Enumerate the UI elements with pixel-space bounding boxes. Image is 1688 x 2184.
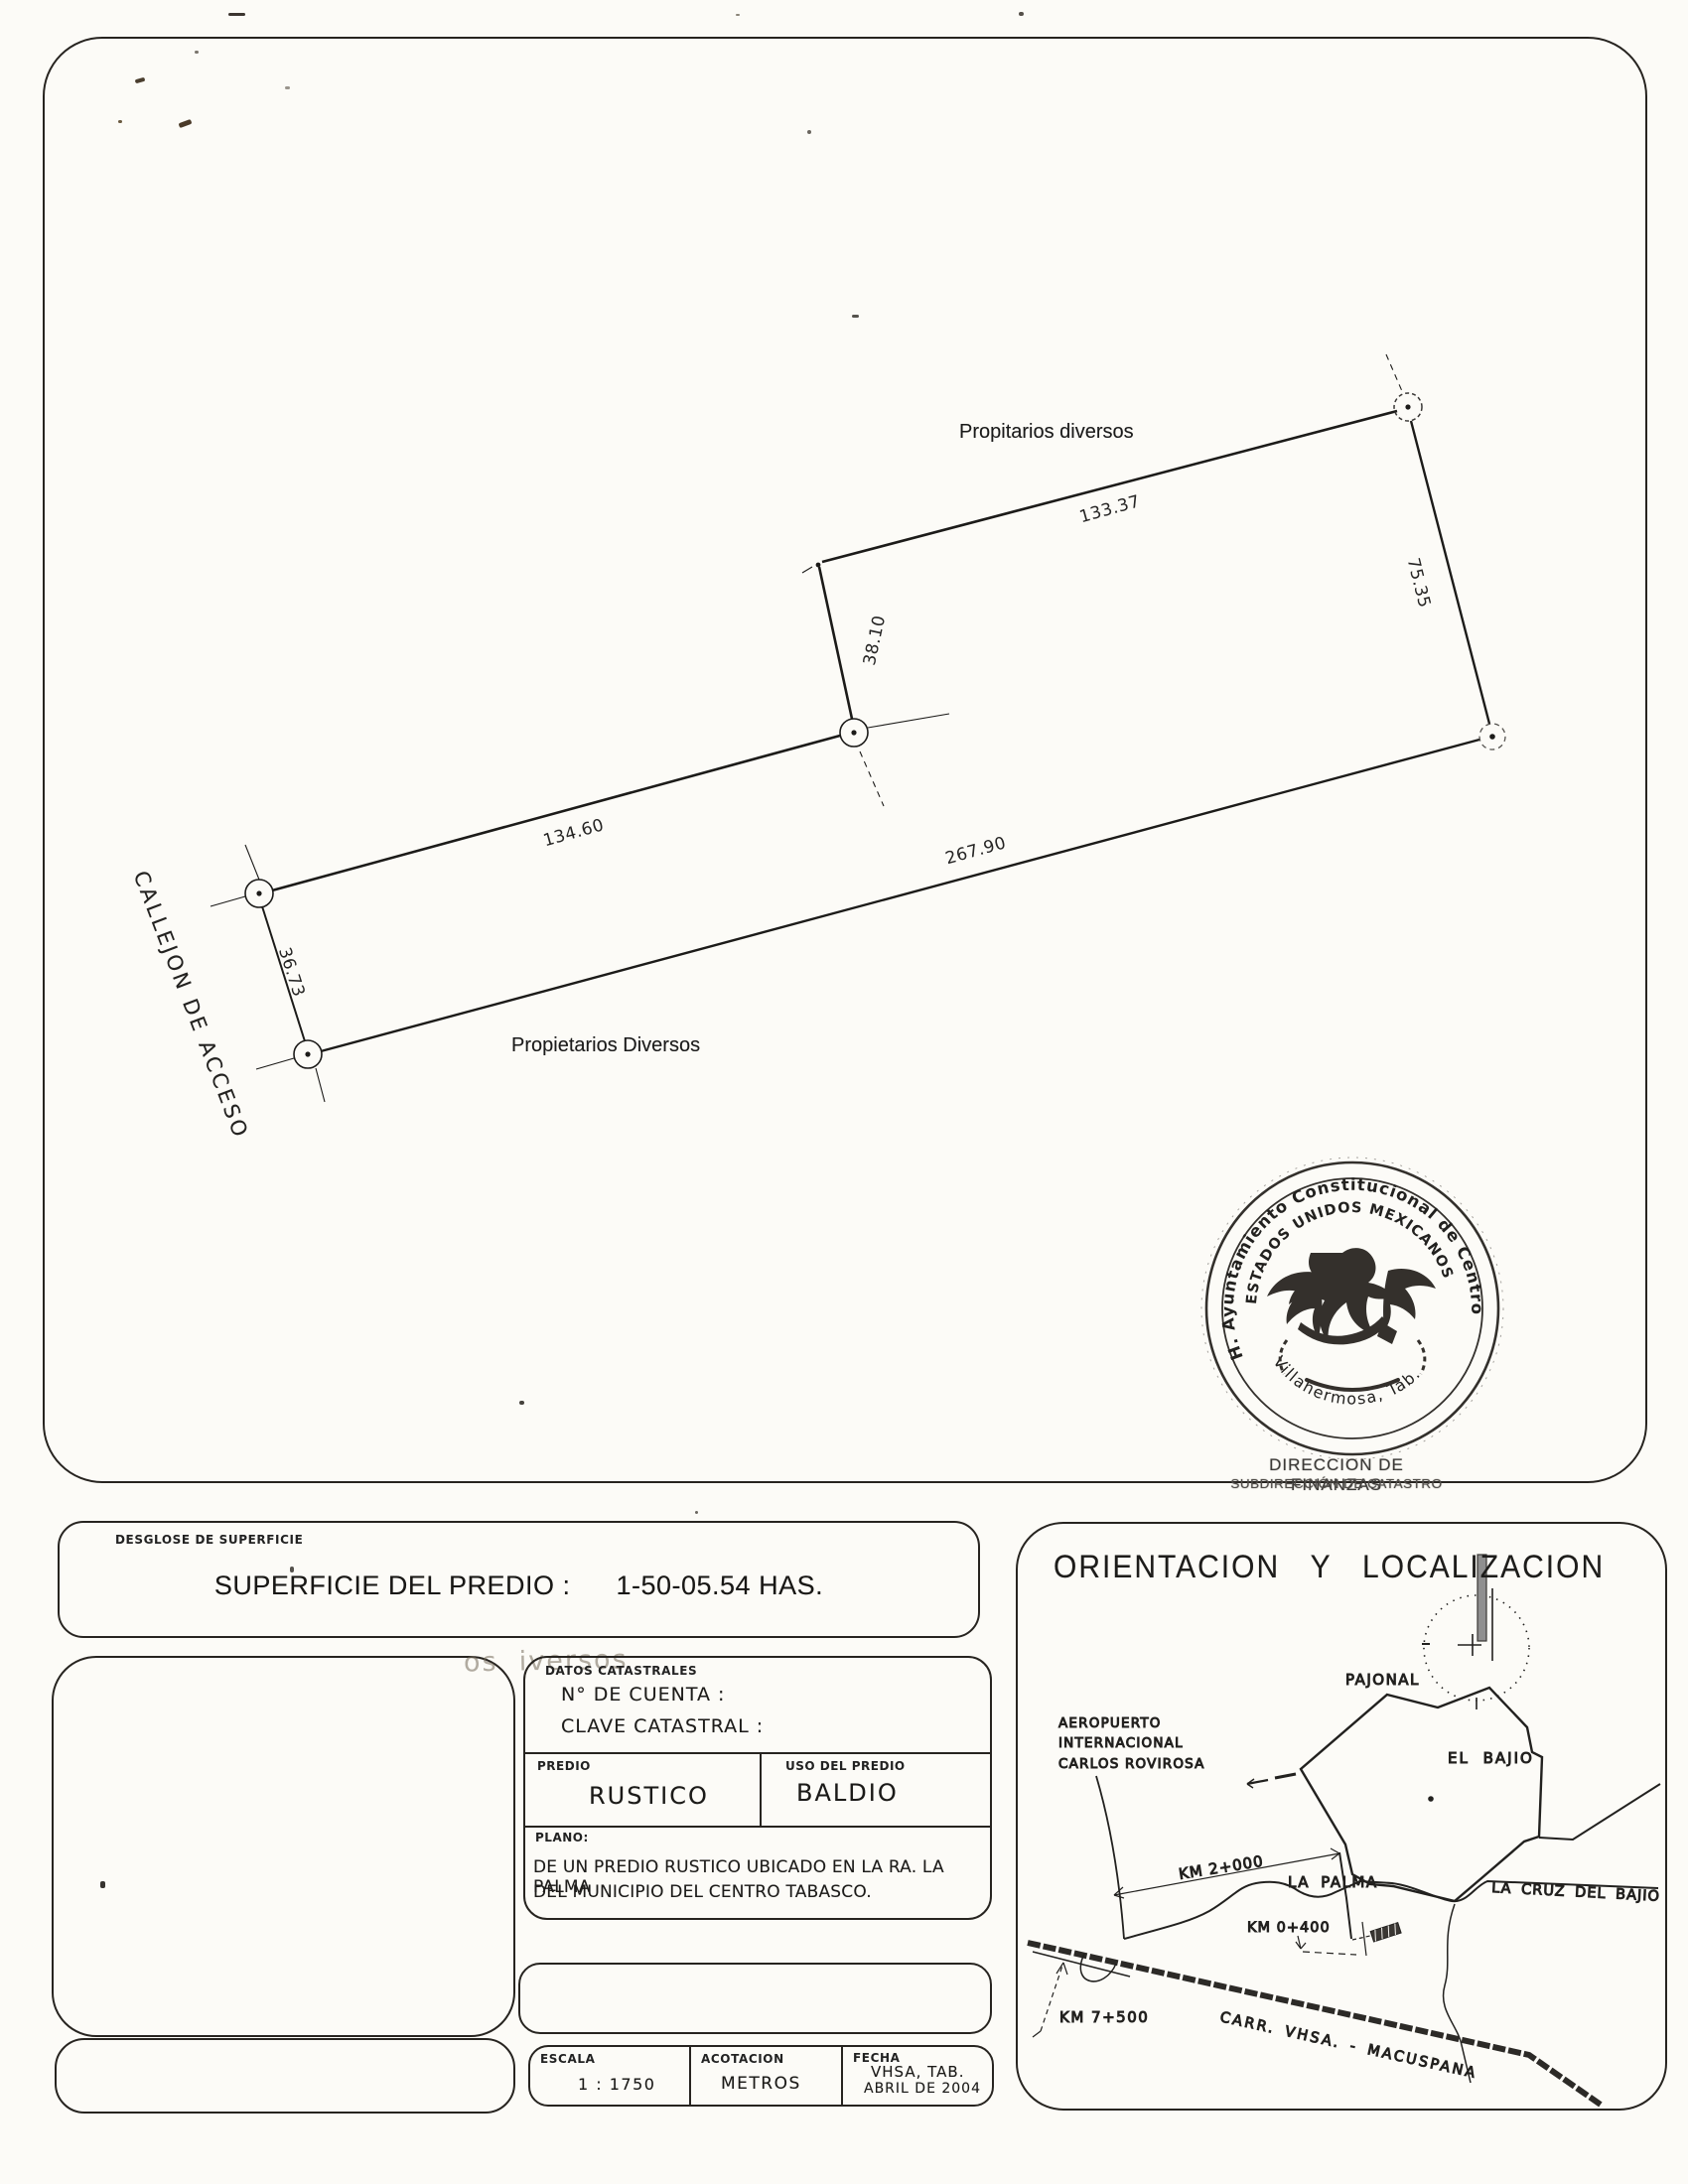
title-block-row: ESCALA 1 : 1750 ACOTACION METROS FECHA V…: [528, 2045, 994, 2107]
empty-detail-box: [52, 1656, 515, 2037]
scale-cell: ESCALA 1 : 1750: [530, 2047, 691, 2105]
empty-footer-box: [55, 2038, 515, 2114]
scan-speck: [285, 86, 290, 89]
scan-speck: [228, 13, 245, 16]
plano-text-line2: DEL MUNICIPIO DEL CENTRO TABASCO.: [533, 1882, 872, 1902]
scan-speck: [695, 1511, 698, 1514]
scan-speck: [100, 1881, 105, 1888]
predio-value: RUSTICO: [589, 1782, 709, 1810]
date-value-line1: VHSA, TAB.: [871, 2063, 964, 2081]
scanned-cadastral-plan: H. Ayuntamiento Constitucional de Centro…: [0, 0, 1688, 2184]
seal-dept-line2: SUBDIRECCIÓN DE CATASTRO: [1229, 1476, 1444, 1490]
neighbor-top-label: Propitarios diversos: [959, 421, 1134, 444]
surface-section-label: DESGLOSE DE SUPERFICIE: [115, 1533, 303, 1547]
units-cell: ACOTACION METROS: [691, 2047, 843, 2105]
units-value: METROS: [721, 2074, 801, 2094]
scan-speck: [807, 130, 811, 134]
uso-del-predio-cell: USO DEL PREDIO BALDIO: [762, 1752, 990, 1826]
neighbor-bottom-label: Propietarios Diversos: [511, 1034, 700, 1057]
plano-section: PLANO: DE UN PREDIO RUSTICO UBICADO EN L…: [525, 1826, 990, 1918]
scale-label: ESCALA: [540, 2052, 595, 2066]
scan-speck: [118, 120, 122, 123]
cadastral-key-label: CLAVE CATASTRAL :: [561, 1715, 764, 1737]
units-label: ACOTACION: [701, 2052, 784, 2066]
cadastral-data-box: DATOS CATASTRALES N° DE CUENTA : CLAVE C…: [523, 1656, 992, 1920]
predio-label: PREDIO: [537, 1759, 591, 1773]
surface-section-box: DESGLOSE DE SUPERFICIE SUPERFICIE DEL PR…: [58, 1521, 980, 1638]
date-cell: FECHA VHSA, TAB. ABRIL DE 2004: [843, 2047, 992, 2105]
account-number-label: N° DE CUENTA :: [561, 1684, 725, 1706]
date-value-line2: ABRIL DE 2004: [864, 2081, 981, 2097]
plan-sheet-border: [43, 37, 1647, 1483]
empty-notes-box: [518, 1963, 992, 2034]
scan-speck: [736, 14, 740, 16]
scale-value: 1 : 1750: [578, 2075, 655, 2094]
scan-speck: [195, 51, 199, 54]
orientation-panel: ORIENTACION Y LOCALIZACION: [1016, 1522, 1667, 2111]
scan-speck: [290, 1567, 294, 1572]
cadastral-header: DATOS CATASTRALES N° DE CUENTA : CLAVE C…: [525, 1658, 990, 1754]
cadastral-section-label: DATOS CATASTRALES: [545, 1664, 697, 1678]
orientation-title: ORIENTACION Y LOCALIZACION: [1054, 1550, 1605, 1586]
predio-cell: PREDIO RUSTICO: [525, 1752, 762, 1826]
plano-label: PLANO:: [535, 1831, 589, 1844]
scan-speck: [519, 1401, 524, 1405]
surface-value: 1-50-05.54 HAS.: [616, 1570, 823, 1601]
surface-label: SUPERFICIE DEL PREDIO :: [214, 1570, 571, 1601]
uso-del-predio-label: USO DEL PREDIO: [785, 1759, 906, 1773]
scan-speck: [1019, 12, 1024, 16]
uso-del-predio-value: BALDIO: [796, 1779, 899, 1807]
scan-speck: [852, 315, 859, 318]
